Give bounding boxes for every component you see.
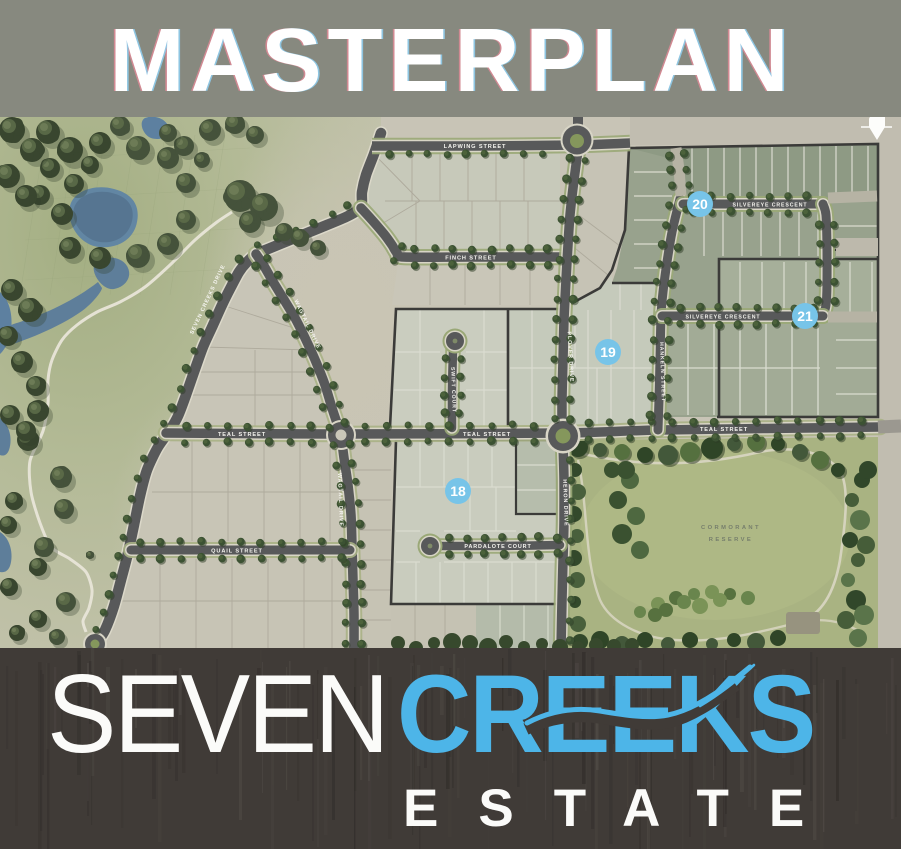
- svg-text:SILVEREYE CRESCENT: SILVEREYE CRESCENT: [733, 203, 808, 209]
- svg-text:PARDALOTE COURT: PARDALOTE COURT: [464, 544, 531, 550]
- svg-text:LAPWING STREET: LAPWING STREET: [444, 144, 507, 150]
- svg-text:FINCH STREET: FINCH STREET: [445, 256, 497, 262]
- svg-text:20: 20: [692, 196, 708, 212]
- svg-text:TEAL STREET: TEAL STREET: [700, 427, 748, 433]
- svg-text:RESERVE: RESERVE: [709, 537, 753, 543]
- svg-text:MASTERPLAN: MASTERPLAN: [110, 11, 795, 111]
- svg-text:19: 19: [600, 344, 616, 360]
- svg-text:TEAL STREET: TEAL STREET: [463, 432, 511, 438]
- svg-text:QUAIL STREET: QUAIL STREET: [211, 549, 263, 555]
- svg-text:CORMORANT: CORMORANT: [701, 525, 761, 531]
- svg-text:SEVEN: SEVEN: [47, 652, 387, 776]
- svg-text:18: 18: [450, 483, 466, 499]
- svg-text:TEAL STREET: TEAL STREET: [218, 432, 266, 438]
- svg-text:21: 21: [797, 308, 813, 324]
- svg-text:SILVEREYE CRESCENT: SILVEREYE CRESCENT: [686, 315, 761, 321]
- svg-text:ESTATE: ESTATE: [403, 779, 844, 838]
